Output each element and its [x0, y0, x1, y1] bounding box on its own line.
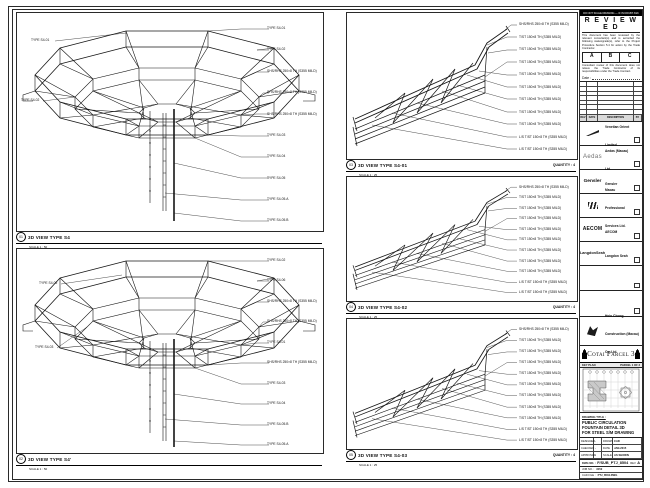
- date-label: Date :: [582, 76, 591, 80]
- leader-label: TYPE S4-05.A: [267, 198, 321, 202]
- revision-label: REV: [630, 462, 636, 465]
- leader-label: TYPE S4-05.B: [267, 423, 321, 427]
- detail-marker: 03: [346, 160, 356, 170]
- consultant-name: Aedas (Macau) Ltd.: [605, 149, 628, 171]
- reviewed-note-1: This document has been reviewed by the r…: [582, 34, 640, 50]
- leader-label: TYPE S4-02: [267, 48, 321, 52]
- project-title: Cotai Parcel 3: [587, 350, 635, 358]
- project-title-banner: Cotai Parcel 3: [580, 346, 642, 363]
- drawing-title-section: DRAWING TITLE : PUBLIC CIRCULATION FOUNT…: [580, 413, 642, 438]
- leader-label: TYPE S4-06: [267, 279, 321, 283]
- mps-logo: [588, 202, 598, 209]
- checked-label: CHECKED: [580, 445, 594, 452]
- leader-label: L/S T/ST 150×8 TH (S355 MILD): [519, 281, 575, 285]
- viewport-3d-view-type-s4: TYPE S4-01TYPE S4-02SHS/RHS 250×8 TH (S3…: [16, 12, 324, 232]
- drawn-value: CAD: [613, 438, 642, 445]
- approved-value: -: [594, 452, 602, 459]
- leader-label: T/ST 150×8 TH (S355 MILD): [519, 394, 575, 398]
- leader-label: T/ST 150×8 TH (S355 MILD): [519, 260, 575, 264]
- view-title-bar: 03 3D VIEW TYPE S4-01 QUANTITY : 4 SCALE…: [346, 160, 576, 177]
- status-checkbox: [634, 283, 640, 289]
- leader-label: T/ST 150×8 TH (S355 MILD): [519, 238, 575, 242]
- view-title: 3D VIEW TYPE S4-03: [358, 453, 407, 458]
- view-title-bar: 04 3D VIEW TYPE S4-02 QUANTITY : 4 SCALE…: [346, 302, 576, 319]
- leader-label: TYPE S4-05.B: [267, 219, 321, 223]
- leader-label: T/ST 150×8 TH (S355 MILD): [519, 406, 575, 410]
- leader-label: TYPE S4-05.A: [267, 443, 321, 447]
- reviewed-stamp: R E V I E W E D This document has been r…: [580, 16, 642, 82]
- leader-label: T/ST 150×8 TH (S355 MILD): [519, 350, 575, 354]
- drawn-label: DRAWN: [602, 438, 613, 445]
- detail-marker: 04: [346, 302, 356, 312]
- job-number-label: JOB NO. :: [582, 468, 594, 471]
- leader-label: T/ST 150×8 TH (S355 MILD): [519, 123, 575, 127]
- status-checkbox: [634, 137, 640, 143]
- leader-label: T/ST 150×8 TH (S355 MILD): [519, 217, 575, 221]
- consultant-row-aecom: AECOM AECOM: [580, 218, 642, 242]
- leader-label: TYPE S4-03: [267, 134, 321, 138]
- consultant-row-empty: [580, 266, 642, 292]
- leader-label: T/ST 150×8 TH (S355 MILD): [519, 361, 575, 365]
- leader-label: SHS/RHS 250×8 TH (S355 MILD): [519, 186, 575, 190]
- approved-label: APPROVED: [580, 452, 594, 459]
- leader-label: TYPE S4-04: [267, 402, 321, 406]
- leader-label: TYPE S4-02: [21, 98, 39, 102]
- leader-label: TYPE S4-02: [267, 259, 321, 263]
- leader-label: SHS/RHS 250×8 TH (S355 MILD): [267, 91, 321, 95]
- designed-label: DESIGNED: [580, 438, 594, 445]
- leader-label: T/ST 150×8 TH (S355 MILD): [519, 249, 575, 253]
- leader-label: L/S T/ST 150×8 TH (S355 MILD): [519, 136, 575, 140]
- leader-label-column: TYPE S4-01TYPE S4-02SHS/RHS 250×8 TH (S3…: [267, 27, 321, 223]
- reviewed-title: R E V I E W E D: [582, 17, 640, 33]
- leader-label: SHS/RHS 250×8 TH (S355 MILD): [267, 361, 321, 365]
- leader-label: SHS/RHS 250×8 TH (S355 MILD): [519, 23, 575, 27]
- cad-file-row: CAD FILE : PTJ_8504.DWG: [580, 473, 642, 479]
- quantity-note: QUANTITY : 4: [553, 305, 575, 309]
- view-title: 3D VIEW TYPE S4': [28, 457, 71, 462]
- leader-label: TYPE S4-01: [267, 27, 321, 31]
- drawing-number-label: DWG NO. :: [582, 462, 596, 465]
- status-checkbox: [634, 233, 640, 239]
- rev-col-header: REV: [580, 115, 587, 121]
- leader-label: L/S T/ST 150×8 TH (S355 MILD): [519, 291, 575, 295]
- leader-label: T/ST 150×8 TH (S355 MILD): [519, 61, 575, 65]
- leader-label: TYPE S4-01: [267, 341, 321, 345]
- detail-marker: 02: [16, 454, 26, 464]
- viewport-3d-view-type-s4-03: SHS/RHS 250×8 TH (S355 MILD)T/ST 150×8 T…: [346, 318, 578, 450]
- contractor-logo: [587, 326, 598, 336]
- view-title-bar: 01 3D VIEW TYPE S4 SCALE 1 : 50: [16, 232, 322, 249]
- leader-label: T/ST 150×8 TH (S355 MILD): [519, 98, 575, 102]
- gensler-logo: Gensler: [584, 179, 602, 184]
- aedas-logo: Aedas: [583, 154, 602, 160]
- contractor-row: Hsin Chong Construction (Macau) Co. Ltd.: [580, 317, 642, 346]
- by-col-header: BY: [634, 115, 642, 121]
- leader-label: T/ST 150×8 TH (S355 MILD): [519, 383, 575, 387]
- date-line: [592, 75, 640, 80]
- leader-label: L/S T/ST 150×8 TH (S355 MILD): [519, 428, 575, 432]
- sign-off-table: DESIGNED - DRAWN CAD CHECKED - DATE JAN-…: [580, 438, 642, 460]
- scale-label: SCALE: [602, 452, 613, 459]
- leader-label: T/ST 150×8 TH (S355 MILD): [519, 372, 575, 376]
- drawing-sheet: TYPE S4-01TYPE S4-02SHS/RHS 250×8 TH (S3…: [0, 0, 650, 488]
- leader-label: T/ST 150×8 TH (S355 MILD): [519, 228, 575, 232]
- view-scale: SCALE 1 : 25: [359, 463, 576, 467]
- leader-label: T/ST 150×8 TH (S355 MILD): [519, 86, 575, 90]
- leader-label: TYPE S4-03: [267, 382, 321, 386]
- status-checkbox: [634, 209, 640, 215]
- viewport-3d-view-type-s4-02: SHS/RHS 250×8 TH (S355 MILD)T/ST 150×8 T…: [346, 176, 578, 302]
- key-plan-drawing: [580, 368, 642, 413]
- revision-value: A: [637, 461, 640, 465]
- langdon-seah-logo: LangdonSeah: [580, 251, 605, 255]
- reviewed-note-2: Consultant review of this document does …: [582, 64, 640, 74]
- leader-label-column: SHS/RHS 250×8 TH (S355 MILD)T/ST 150×8 T…: [519, 328, 575, 442]
- leader-label: L/S T/ST 150×8 TH (S355 MILD): [519, 439, 575, 443]
- leader-label: TYPE S4-05: [267, 177, 321, 181]
- leader-label: SHS/RHS 250×8 TH (S355 MILD): [519, 328, 575, 332]
- view-title: 3D VIEW TYPE S4-01: [358, 163, 407, 168]
- key-plan-parcel: PARCEL 1 OF 3: [620, 364, 640, 367]
- grade-boxes: A B C: [582, 52, 640, 63]
- leader-label-column: TYPE S4-02TYPE S4-06SHS/RHS 250×8 TH (S3…: [267, 259, 321, 447]
- view-title: 3D VIEW TYPE S4: [28, 235, 70, 240]
- leader-label: T/ST 150×8 TH (S355 MILD): [519, 339, 575, 343]
- quantity-note: QUANTITY : 4: [553, 453, 575, 457]
- leader-label: TYPE S4-01: [31, 38, 49, 42]
- checked-value: -: [594, 445, 602, 452]
- viewport-3d-view-type-s4-01: SHS/RHS 250×8 TH (S355 MILD)T/ST 150×8 T…: [346, 12, 578, 160]
- detail-marker: 01: [16, 232, 26, 242]
- grade-b: B: [602, 53, 621, 62]
- date-label: DATE: [602, 445, 613, 452]
- drawing-number-row: DWG NO. : F/SUB_PTJ_8504 REV A: [580, 460, 642, 467]
- consultant-name: AECOM: [605, 230, 617, 234]
- date-value: JAN-2015: [613, 445, 642, 452]
- cad-file-name: PTJ_8504.DWG: [598, 474, 618, 477]
- leader-label: T/ST 150×8 TH (S355 MILD): [519, 196, 575, 200]
- leader-label: T/ST 150×8 TH (S355 MILD): [519, 207, 575, 211]
- drawing-title-label: DRAWING TITLE :: [582, 415, 640, 419]
- leader-label: SHS/RHS 250×8 TH (S355 MILD): [267, 300, 321, 304]
- banner-ornament-icon: [635, 349, 640, 359]
- view-title-bar: 05 3D VIEW TYPE S4-03 QUANTITY : 4 SCALE…: [346, 450, 576, 467]
- leader-label: T/ST 150×8 TH (S355 MILD): [519, 111, 575, 115]
- status-checkbox: [634, 161, 640, 167]
- leader-label: TYPE S4-02: [39, 281, 57, 285]
- drawing-number: F/SUB_PTJ_8504: [597, 461, 628, 465]
- consultant-row-langdon-seah: LangdonSeah Langdon Seah: [580, 242, 642, 266]
- leader-label: TYPE S4-04: [267, 155, 321, 159]
- job-number: 3152: [596, 468, 602, 471]
- consultant-name: Langdon Seah: [605, 254, 628, 258]
- grade-c: C: [620, 53, 639, 62]
- aecom-logo: AECOM: [583, 226, 603, 232]
- leader-label: T/ST 150×8 TH (S355 MILD): [519, 270, 575, 274]
- consultant-row-mps: Macau Professional Services Ltd.: [580, 194, 642, 218]
- leader-label: T/ST 150×8 TH (S355 MILD): [519, 417, 575, 421]
- quantity-note: QUANTITY : 4: [553, 163, 575, 167]
- date-col-header: DATE: [587, 115, 598, 121]
- venetian-orient-logo: [586, 130, 599, 136]
- status-checkbox: [634, 257, 640, 263]
- consultant-row-aedas: Aedas Aedas (Macau) Ltd.: [580, 146, 642, 170]
- title-block: DO NOT SCALE DRAWING — IF IN DOUBT ASK R…: [579, 9, 643, 480]
- leader-label: SHS/RHS 250×8 TH (S355 MILD): [267, 320, 321, 324]
- leader-label: TYPE S4-03: [35, 345, 53, 349]
- status-checkbox: [634, 185, 640, 191]
- view-title: 3D VIEW TYPE S4-02: [358, 305, 407, 310]
- leader-label: T/ST 150×8 TH (S355 MILD): [519, 48, 575, 52]
- leader-label-column: SHS/RHS 250×8 TH (S355 MILD)T/ST 150×8 T…: [519, 23, 575, 151]
- view-scale: SCALE 1 : 50: [29, 467, 322, 471]
- viewport-3d-view-type-s4-alt: TYPE S4-02TYPE S4-06SHS/RHS 250×8 TH (S3…: [16, 248, 324, 454]
- drawing-title-line: FOR STEEL S/M DRAWING: [582, 430, 640, 435]
- leader-label: SHS/RHS 250×8 TH (S355 MILD): [267, 70, 321, 74]
- leader-label: T/ST 150×8 TH (S355 MILD): [519, 73, 575, 77]
- scale-value: AS SHOWN: [613, 452, 642, 459]
- leader-label: T/ST 150×8 TH (S355 MILD): [519, 36, 575, 40]
- grade-a: A: [583, 53, 602, 62]
- leader-label: SHS/RHS 250×8 TH (S355 MILD): [267, 113, 321, 117]
- cad-file-label: CAD FILE :: [582, 474, 596, 477]
- key-plan-label: KEY PLAN: [582, 364, 596, 367]
- view-title-bar: 02 3D VIEW TYPE S4' SCALE 1 : 50: [16, 454, 322, 471]
- detail-marker: 05: [346, 450, 356, 460]
- designed-value: -: [594, 438, 602, 445]
- leader-label-column: SHS/RHS 250×8 TH (S355 MILD)T/ST 150×8 T…: [519, 186, 575, 295]
- leader-label: L/S T/ST 150×8 TH (S355 MILD): [519, 148, 575, 152]
